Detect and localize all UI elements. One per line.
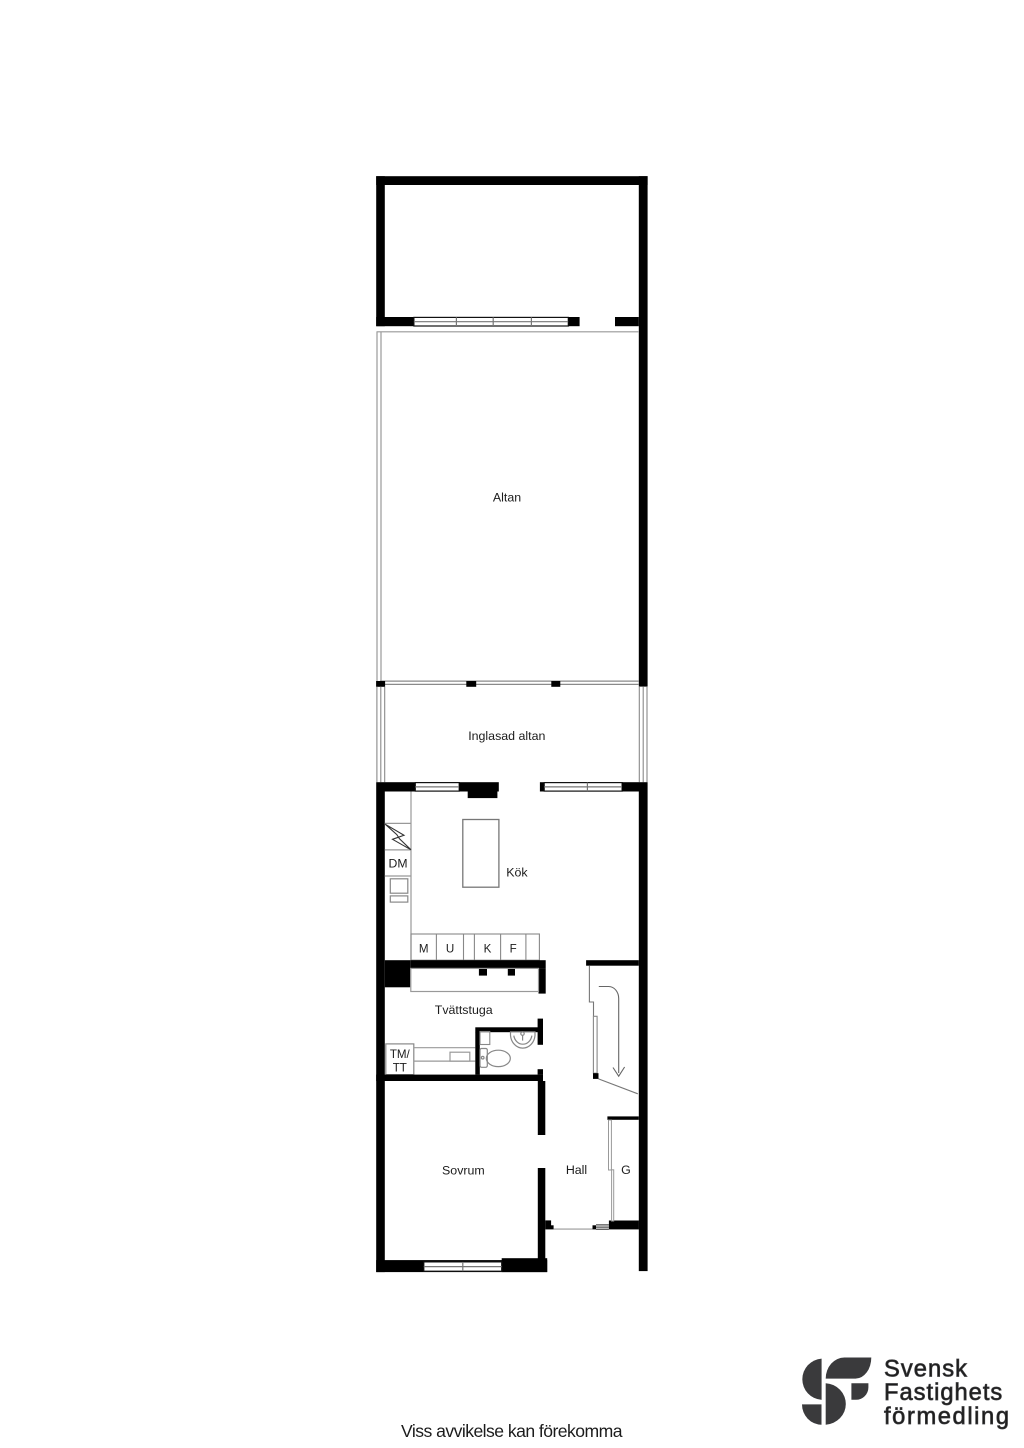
svg-text:förmedling: förmedling xyxy=(884,1404,1011,1430)
svg-text:Inglasad altan: Inglasad altan xyxy=(468,729,545,743)
svg-text:U: U xyxy=(446,943,454,956)
svg-text:Sovrum: Sovrum xyxy=(442,1164,485,1178)
svg-text:DM: DM xyxy=(389,856,408,870)
svg-text:TT: TT xyxy=(393,1062,407,1075)
svg-text:G: G xyxy=(621,1163,631,1177)
svg-text:Tvättstuga: Tvättstuga xyxy=(435,1003,493,1017)
svg-text:Altan: Altan xyxy=(493,490,521,504)
svg-text:Hall: Hall xyxy=(566,1163,587,1177)
svg-text:Kök: Kök xyxy=(506,866,528,880)
svg-text:Fastighets: Fastighets xyxy=(884,1380,1003,1406)
svg-text:Viss avvikelse kan förekomma: Viss avvikelse kan förekomma xyxy=(401,1421,623,1441)
svg-text:F: F xyxy=(510,943,517,956)
svg-text:K: K xyxy=(484,943,492,956)
svg-text:M: M xyxy=(419,943,429,956)
svg-text:Svensk: Svensk xyxy=(884,1357,968,1383)
svg-text:TM/: TM/ xyxy=(390,1048,411,1061)
